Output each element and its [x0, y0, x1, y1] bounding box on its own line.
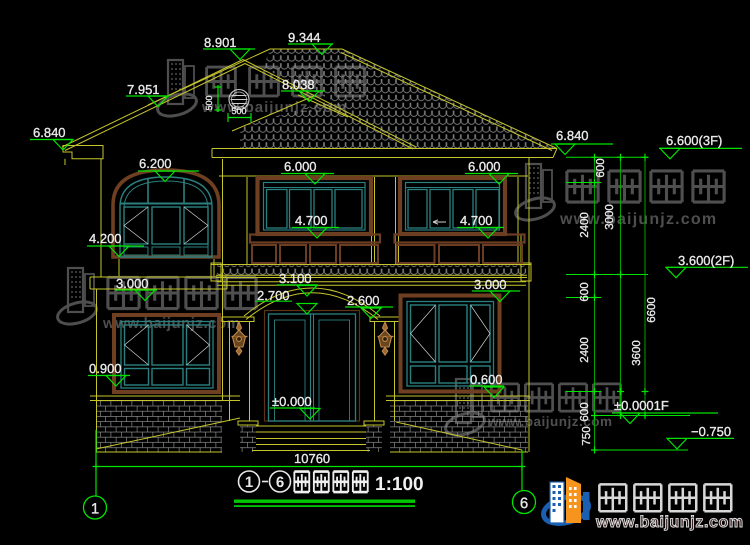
- svg-text:2400: 2400: [579, 337, 591, 363]
- svg-text:3.600(2F): 3.600(2F): [678, 253, 734, 268]
- svg-text:3.100: 3.100: [279, 271, 312, 286]
- svg-text:6600: 6600: [646, 297, 658, 323]
- svg-text:6.600(3F): 6.600(3F): [666, 133, 722, 148]
- svg-text:8.901: 8.901: [204, 35, 237, 50]
- svg-text:0.900: 0.900: [89, 361, 122, 376]
- svg-text:6: 6: [520, 495, 528, 512]
- svg-text:6.840: 6.840: [556, 128, 589, 143]
- svg-text:1: 1: [91, 501, 99, 518]
- svg-text:1: 1: [245, 474, 253, 491]
- svg-text:8.038: 8.038: [282, 77, 315, 92]
- svg-text:±0.0001F: ±0.0001F: [614, 398, 669, 413]
- svg-text:10760: 10760: [294, 451, 330, 466]
- svg-text:1:100: 1:100: [375, 474, 424, 495]
- svg-text:www.baijunjz.com: www.baijunjz.com: [595, 514, 744, 531]
- svg-text:4.700: 4.700: [295, 213, 328, 228]
- svg-text:±0.000: ±0.000: [272, 394, 312, 409]
- svg-text:2.600: 2.600: [347, 293, 380, 308]
- svg-text:600: 600: [595, 158, 607, 177]
- svg-text:4.200: 4.200: [89, 231, 122, 246]
- svg-text:3.000: 3.000: [116, 276, 149, 291]
- svg-text:6: 6: [276, 474, 284, 491]
- svg-text:500: 500: [231, 106, 246, 116]
- svg-text:4.700: 4.700: [460, 213, 493, 228]
- svg-text:6.000: 6.000: [468, 159, 501, 174]
- svg-text:750: 750: [581, 426, 593, 445]
- svg-text:www.baijunjz.com: www.baijunjz.com: [487, 414, 613, 429]
- svg-text:3600: 3600: [631, 340, 643, 366]
- svg-text:3000: 3000: [604, 204, 616, 230]
- svg-text:6.000: 6.000: [284, 159, 317, 174]
- svg-text:7.951: 7.951: [127, 82, 160, 97]
- svg-text:6.840: 6.840: [33, 125, 66, 140]
- svg-text:0.600: 0.600: [470, 372, 503, 387]
- svg-text:2.700: 2.700: [257, 288, 290, 303]
- svg-text:600: 600: [579, 402, 591, 421]
- svg-text:2400: 2400: [579, 212, 591, 238]
- svg-text:500: 500: [204, 95, 214, 110]
- svg-text:−0.750: −0.750: [691, 424, 731, 439]
- svg-text:600: 600: [579, 282, 591, 301]
- svg-text:6.200: 6.200: [139, 156, 172, 171]
- svg-text:3.000: 3.000: [474, 277, 507, 292]
- svg-text:9.344: 9.344: [288, 30, 321, 45]
